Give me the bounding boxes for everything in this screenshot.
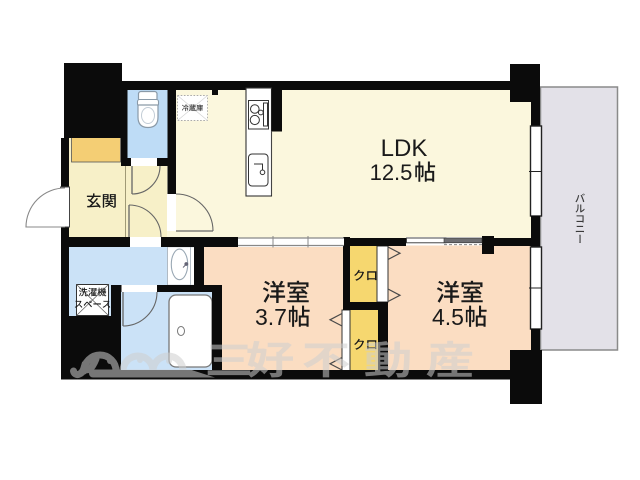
svg-text:4.5: 4.5 xyxy=(432,304,464,330)
svg-text:3.7: 3.7 xyxy=(255,304,287,330)
svg-text:LDK: LDK xyxy=(381,135,428,162)
svg-text:12.5: 12.5 xyxy=(370,160,413,185)
